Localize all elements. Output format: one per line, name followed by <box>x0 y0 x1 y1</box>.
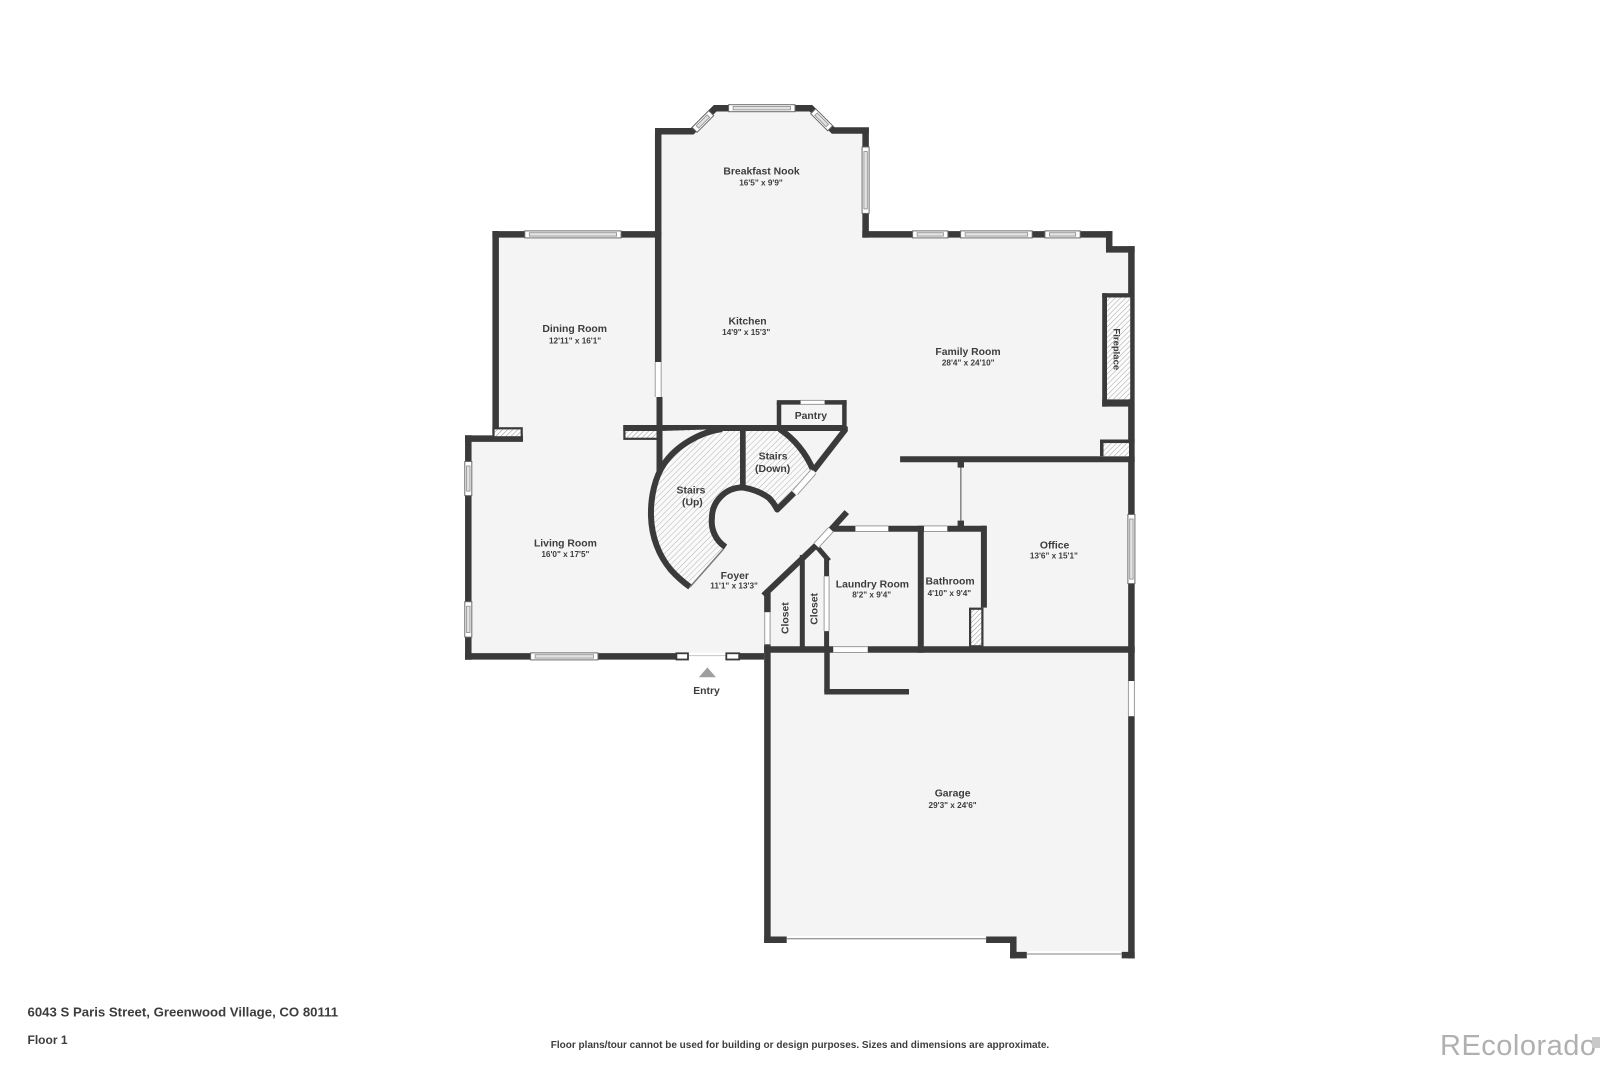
svg-text:13'6" x 15'1": 13'6" x 15'1" <box>1030 552 1078 561</box>
svg-text:4'10" x 9'4": 4'10" x 9'4" <box>928 589 972 598</box>
svg-text:Closet: Closet <box>781 602 792 634</box>
svg-text:16'5" x 9'9": 16'5" x 9'9" <box>739 178 783 187</box>
svg-text:Office: Office <box>1040 540 1070 551</box>
svg-text:12'11" x 16'1": 12'11" x 16'1" <box>549 337 601 346</box>
svg-text:6043 S Paris Street, Greenwood: 6043 S Paris Street, Greenwood Village, … <box>28 1005 339 1020</box>
svg-text:Dining Room: Dining Room <box>542 324 607 335</box>
svg-text:28'4" x 24'10": 28'4" x 24'10" <box>942 358 995 367</box>
svg-text:Foyer: Foyer <box>721 571 749 582</box>
svg-text:REcolorado: REcolorado <box>1440 1030 1597 1062</box>
svg-text:Floor 1: Floor 1 <box>28 1033 68 1047</box>
svg-text:Stairs: Stairs <box>677 486 706 497</box>
svg-text:Breakfast Nook: Breakfast Nook <box>723 166 799 177</box>
svg-text:29'3" x 24'6": 29'3" x 24'6" <box>929 801 977 810</box>
svg-text:Living Room: Living Room <box>534 538 597 549</box>
svg-text:Family Room: Family Room <box>935 347 1000 358</box>
svg-text:Entry: Entry <box>693 686 720 697</box>
svg-text:11'1" x 13'3": 11'1" x 13'3" <box>710 581 758 590</box>
svg-text:Closet: Closet <box>809 592 820 624</box>
svg-text:Garage: Garage <box>935 789 971 800</box>
svg-text:Bathroom: Bathroom <box>926 576 975 587</box>
svg-text:Kitchen: Kitchen <box>729 317 767 328</box>
svg-text:14'9" x 15'3": 14'9" x 15'3" <box>722 328 770 337</box>
svg-text:8'2" x 9'4": 8'2" x 9'4" <box>852 591 891 600</box>
svg-text:16'0" x 17'5": 16'0" x 17'5" <box>541 550 589 559</box>
svg-text:Stairs: Stairs <box>759 452 788 463</box>
svg-text:(Down): (Down) <box>755 464 790 475</box>
svg-text:Floor plans/tour cannot be use: Floor plans/tour cannot be used for buil… <box>551 1040 1050 1051</box>
svg-text:(Up): (Up) <box>682 498 703 509</box>
svg-text:Fireplace: Fireplace <box>1110 328 1121 370</box>
svg-text:Pantry: Pantry <box>795 411 828 422</box>
svg-text:Laundry Room: Laundry Room <box>836 579 909 590</box>
